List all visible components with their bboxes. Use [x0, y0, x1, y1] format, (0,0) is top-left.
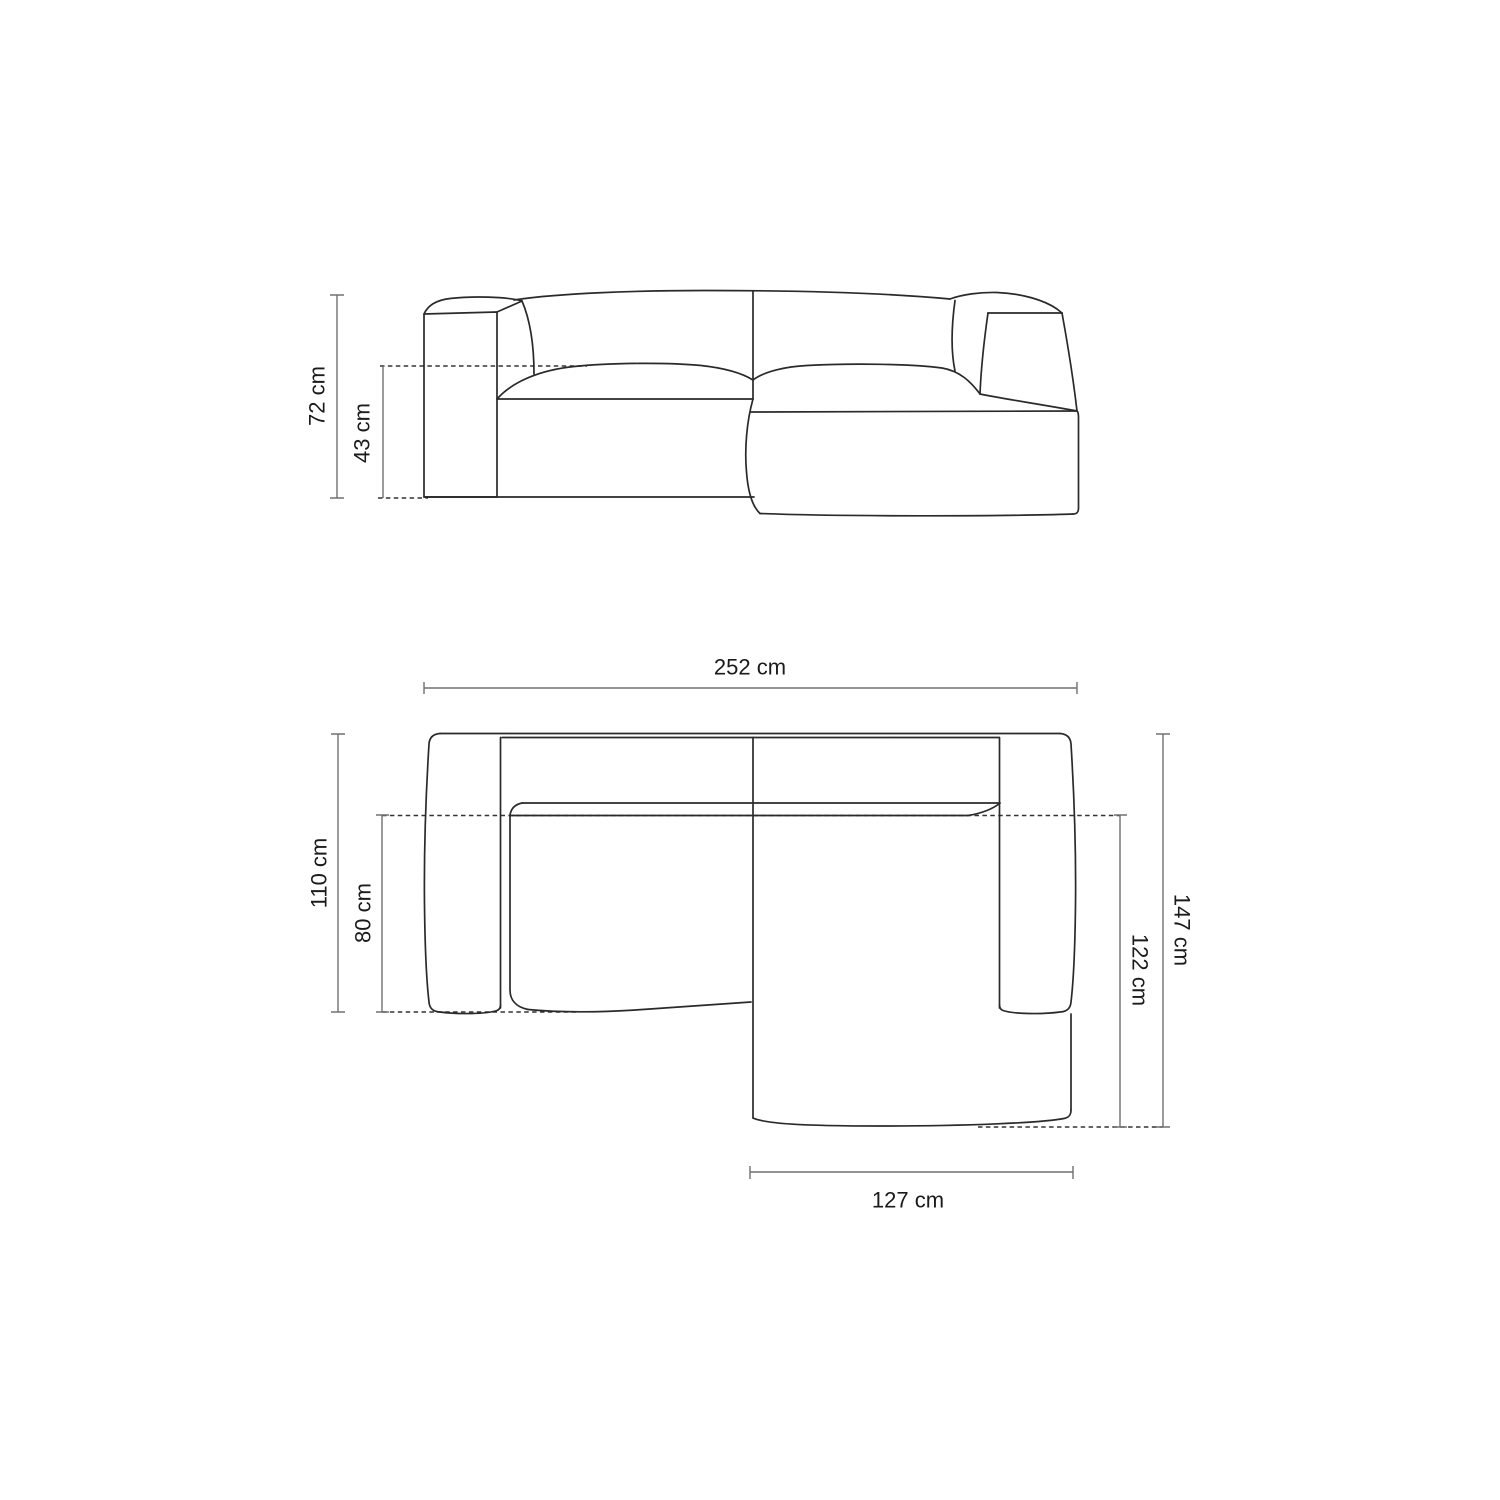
sofa-plan-outline	[424, 734, 1075, 1127]
plan-right-armrest	[1000, 734, 1076, 1014]
top-plan-view: 252 cm 110 cm 80 cm 147 cm 122 cm 127 cm	[307, 655, 1195, 1213]
front-elevation-view: 72 cm 43 cm	[305, 291, 1079, 516]
dim-label-total-depth: 147 cm	[1170, 894, 1195, 966]
dim-label-total-width: 252 cm	[714, 655, 786, 680]
chaise-front-right-edge	[1073, 411, 1079, 514]
dim-line-sofa-depth	[331, 734, 345, 1012]
chaise-front-bottom-edge	[760, 514, 1073, 516]
plan-backrest-left-fillet	[510, 803, 522, 815]
left-armrest-front-face	[424, 312, 497, 497]
dim-label-total-height: 72 cm	[305, 366, 330, 426]
right-armrest-face-left-edge	[980, 313, 988, 394]
front-view-dimensions: 72 cm 43 cm	[305, 295, 384, 498]
dim-label-chaise-depth: 122 cm	[1128, 934, 1153, 1006]
dim-line-seat-depth	[376, 815, 389, 1012]
right-armrest-face-right-edge	[1062, 313, 1077, 411]
plan-chaise-bottom-edge	[753, 1110, 1071, 1126]
plan-backrest-right-fillet	[968, 803, 1000, 816]
dim-line-total-depth	[1156, 734, 1170, 1127]
dim-label-seat-depth: 80 cm	[351, 883, 376, 943]
left-seat-cushion-top	[497, 363, 753, 399]
left-backrest-inner-seam	[522, 301, 534, 374]
right-armrest-bottom-curve	[980, 394, 1077, 411]
backrest-top-edge	[514, 291, 950, 301]
dim-label-sofa-depth: 110 cm	[307, 838, 332, 909]
sofa-front-outline	[424, 291, 1079, 516]
dim-line-chaise-width	[750, 1166, 1073, 1179]
diagram-canvas: 72 cm 43 cm	[0, 0, 1500, 1500]
sofa-dimension-diagram-page: { "diagram": { "subject": "corner-sofa-w…	[0, 0, 1500, 1500]
right-armrest-inner-seam	[952, 301, 955, 372]
left-armrest-top-face	[424, 297, 522, 314]
dim-label-seat-height: 43 cm	[350, 403, 375, 463]
dim-label-chaise-width: 127 cm	[872, 1188, 944, 1213]
chaise-front-top-edge	[751, 411, 1077, 412]
dim-line-chaise-depth	[1114, 815, 1127, 1127]
dim-line-total-height	[330, 295, 344, 498]
dim-line-total-width	[424, 682, 1077, 694]
plan-left-armrest	[424, 734, 500, 1014]
right-seat-cushion-top	[753, 364, 980, 394]
plan-seat-front-curve	[528, 1002, 751, 1012]
right-armrest-top-arc	[950, 292, 1062, 313]
plan-seat-left-edge	[510, 815, 528, 1010]
